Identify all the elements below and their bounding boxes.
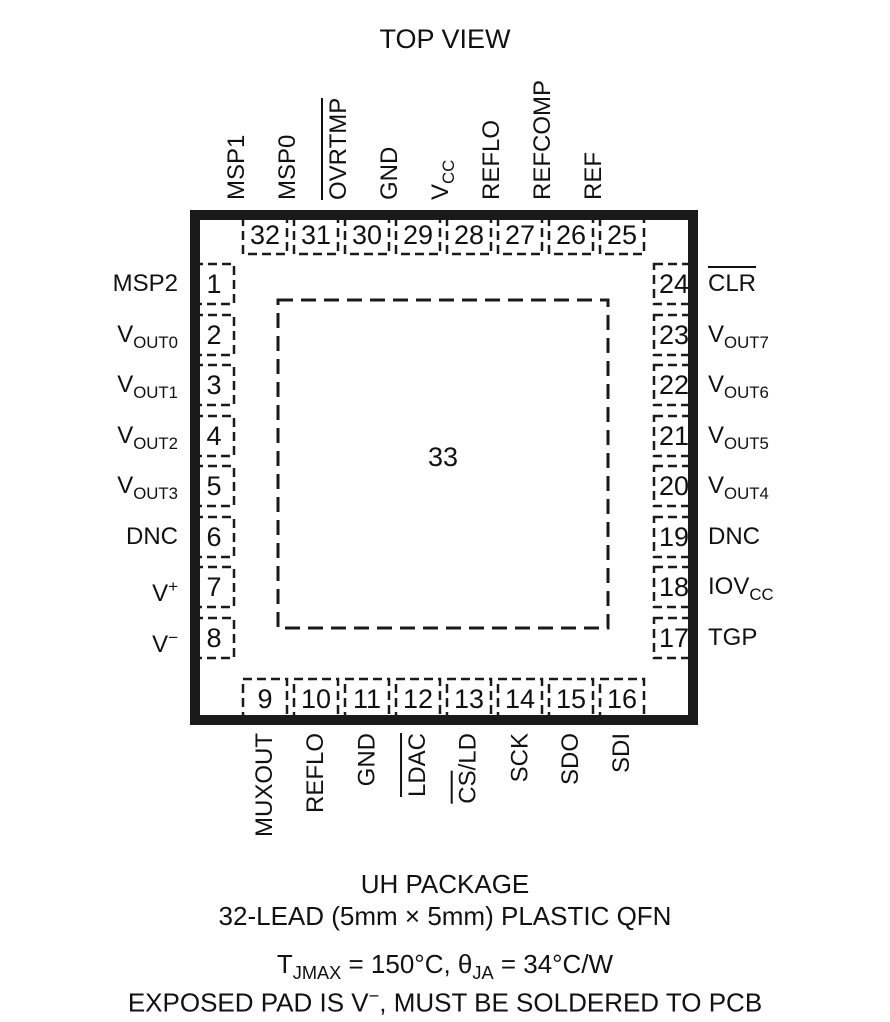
- label-text: IOV: [708, 573, 749, 600]
- pin-label-vout3: VOUT3: [117, 472, 178, 500]
- exposed-note-tail: , MUST BE SOLDERED TO PCB: [379, 988, 762, 1018]
- pin-label-dnc-left: DNC: [126, 523, 178, 551]
- pin-number-1: 1: [194, 264, 234, 304]
- label-text-overline: OVRTMP: [321, 98, 352, 200]
- label-text: V: [708, 422, 724, 449]
- pin-number-18: 18: [654, 567, 694, 607]
- pin-label-refcomp: REFCOMP: [529, 80, 557, 200]
- pin-label-vcc: VCC: [427, 160, 455, 200]
- pin-label-vout4: VOUT4: [708, 472, 769, 500]
- pin-label-vout0: VOUT0: [117, 321, 178, 349]
- pinout-figure: TOP VIEW: [0, 0, 890, 1022]
- pin-number-19: 19: [654, 517, 694, 557]
- label-superscript: −: [168, 628, 178, 647]
- pin-number-24: 24: [654, 264, 694, 304]
- pin-number-29: 29: [396, 216, 440, 254]
- pin-number-32: 32: [243, 216, 287, 254]
- pin-label-msp0: MSP0: [274, 135, 302, 200]
- label-text: REFLO: [302, 733, 329, 813]
- pin-number-21: 21: [654, 416, 694, 456]
- exposed-note-superscript: −: [369, 986, 380, 1006]
- label-text: DNC: [126, 523, 178, 550]
- pin-label-msp2: MSP2: [113, 270, 178, 298]
- label-subscript: OUT0: [133, 333, 178, 352]
- pin-label-vminus: V−: [152, 624, 178, 652]
- pin-number-6: 6: [194, 517, 234, 557]
- pin-number-26: 26: [549, 216, 593, 254]
- pin-number-20: 20: [654, 466, 694, 506]
- pin-number-10: 10: [294, 679, 338, 719]
- pin-label-vout6: VOUT6: [708, 371, 769, 399]
- label-text: V: [117, 422, 133, 449]
- label-text: TGP: [708, 624, 757, 651]
- pin-number-7: 7: [194, 567, 234, 607]
- pin-label-sck: SCK: [506, 733, 534, 782]
- label-text: V: [708, 371, 724, 398]
- label-text: GND: [376, 147, 403, 200]
- pin-number-25: 25: [600, 216, 644, 254]
- label-subscript: CC: [439, 160, 458, 184]
- label-text: MSP0: [274, 135, 301, 200]
- label-subscript: OUT3: [133, 484, 178, 503]
- pin-number-4: 4: [194, 416, 234, 456]
- pin-number-23: 23: [654, 315, 694, 355]
- label-subscript: OUT2: [133, 434, 178, 453]
- label-text: MSP1: [223, 135, 250, 200]
- pin-number-28: 28: [447, 216, 491, 254]
- pin-label-clr: CLR: [708, 270, 756, 298]
- pin-number-3: 3: [194, 365, 234, 405]
- label-text: V: [708, 321, 724, 348]
- pin-label-tgp: TGP: [708, 624, 757, 652]
- label-subscript: OUT6: [724, 383, 769, 402]
- exposed-pad-number: 33: [393, 441, 493, 473]
- label-text: V: [152, 631, 168, 658]
- pin-label-sdi: SDI: [608, 733, 636, 773]
- pin-number-13: 13: [447, 679, 491, 719]
- label-text: V: [152, 580, 168, 607]
- pin-label-vout7: VOUT7: [708, 321, 769, 349]
- label-text: REFCOMP: [529, 80, 556, 200]
- pin-number-11: 11: [345, 679, 389, 719]
- label-subscript: CC: [749, 585, 773, 604]
- label-text-overline: LDAC: [400, 733, 431, 797]
- label-text: SCK: [506, 733, 533, 782]
- label-text: V: [117, 321, 133, 348]
- label-text: MUXOUT: [251, 733, 278, 837]
- label-text: GND: [353, 733, 380, 786]
- label-text: SDI: [608, 733, 635, 773]
- package-name: UH PACKAGE: [0, 869, 890, 899]
- label-subscript: OUT1: [133, 383, 178, 402]
- pin-number-22: 22: [654, 365, 694, 405]
- label-text: REFLO: [478, 120, 505, 200]
- label-text: REF: [580, 152, 607, 200]
- label-text: MSP2: [113, 270, 178, 297]
- pin-label-ldac: LDAC: [404, 733, 432, 797]
- label-subscript: OUT5: [724, 434, 769, 453]
- pin-label-muxout: MUXOUT: [251, 733, 279, 837]
- thermal-mid: = 150°C, θ: [341, 949, 472, 979]
- label-text: SDO: [557, 733, 584, 785]
- pin-label-reflo-bottom: REFLO: [302, 733, 330, 813]
- label-text: V: [427, 184, 454, 200]
- pin-label-gnd-bottom: GND: [353, 733, 381, 786]
- pin-label-ovrtmp: OVRTMP: [325, 98, 353, 200]
- pin-number-27: 27: [498, 216, 542, 254]
- pin-label-ref: REF: [580, 152, 608, 200]
- label-text: /LD: [455, 733, 482, 770]
- pin-number-5: 5: [194, 466, 234, 506]
- pin-number-16: 16: [600, 679, 644, 719]
- label-text: V: [117, 472, 133, 499]
- pin-number-14: 14: [498, 679, 542, 719]
- pin-number-8: 8: [194, 618, 234, 658]
- label-text-overline: CLR: [708, 266, 756, 297]
- pin-label-csld: CS/LD: [455, 733, 483, 804]
- pin-label-reflo-top: REFLO: [478, 120, 506, 200]
- label-text: V: [708, 472, 724, 499]
- thermal-t: T: [277, 949, 293, 979]
- pin-label-msp1: MSP1: [223, 135, 251, 200]
- package-description: 32-LEAD (5mm × 5mm) PLASTIC QFN: [0, 901, 890, 931]
- pin-number-12: 12: [396, 679, 440, 719]
- pin-number-30: 30: [345, 216, 389, 254]
- label-subscript: OUT7: [724, 333, 769, 352]
- pin-number-2: 2: [194, 315, 234, 355]
- pin-number-17: 17: [654, 618, 694, 658]
- pin-label-vout5: VOUT5: [708, 422, 769, 450]
- label-subscript: OUT4: [724, 484, 769, 503]
- label-text: V: [117, 371, 133, 398]
- pin-number-9: 9: [243, 679, 287, 719]
- pin-label-vout1: VOUT1: [117, 371, 178, 399]
- pin-label-vplus: V+: [152, 573, 178, 601]
- pin-label-iovcc: IOVCC: [708, 573, 774, 601]
- pin-number-15: 15: [549, 679, 593, 719]
- thermal-tail: = 34°C/W: [494, 949, 614, 979]
- exposed-pad-note: EXPOSED PAD IS V−, MUST BE SOLDERED TO P…: [0, 981, 890, 1018]
- pin-label-gnd-top: GND: [376, 147, 404, 200]
- label-superscript: +: [168, 577, 178, 596]
- label-text: DNC: [708, 523, 760, 550]
- pin-label-sdo: SDO: [557, 733, 585, 785]
- pin-label-dnc-right: DNC: [708, 523, 760, 551]
- pin-number-31: 31: [294, 216, 338, 254]
- exposed-note-text: EXPOSED PAD IS V: [128, 988, 369, 1018]
- pin-label-vout2: VOUT2: [117, 422, 178, 450]
- label-text-overline: CS: [451, 770, 482, 803]
